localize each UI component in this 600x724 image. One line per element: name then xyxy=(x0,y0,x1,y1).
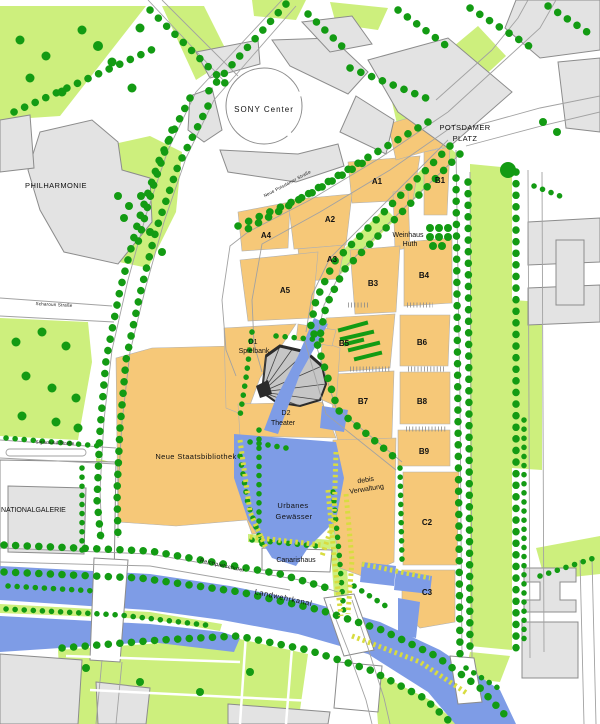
building-nationalgalerie xyxy=(8,486,86,554)
label-d1-spielbank: Spielbank xyxy=(239,348,270,355)
label-block-A2: A2 xyxy=(325,215,336,224)
label-staatsbibliothek: Neue Staatsbibliothek xyxy=(155,452,236,461)
label-sony-center: SONY Center xyxy=(234,105,294,114)
label-block-A1: A1 xyxy=(372,177,383,186)
label-d1: D1 xyxy=(249,339,258,346)
building-bottom-left-2 xyxy=(96,682,150,724)
label-d2-theater: Theater xyxy=(271,420,296,427)
label-block-B5: B5 xyxy=(339,339,350,348)
label-block-A5: A5 xyxy=(280,286,291,295)
label-block-A3: A3 xyxy=(327,255,338,264)
park-east-strip xyxy=(470,164,512,650)
label-block-C2: C2 xyxy=(422,518,433,527)
label-sigismund-strasse: Sigismund Straße xyxy=(35,439,74,445)
park-left-middle xyxy=(0,318,92,440)
label-potsdamer-platz-1: POTSDAMER xyxy=(439,123,490,132)
label-weinhaus-2: Huth xyxy=(403,241,418,248)
building-philharmonie-west xyxy=(0,115,34,172)
label-d2: D2 xyxy=(282,410,291,417)
label-weinhaus-1: Weinhaus xyxy=(392,232,424,239)
label-block-B4: B4 xyxy=(419,271,430,280)
label-philharmonie: PHILHARMONIE xyxy=(25,181,87,190)
label-urbanes-1: Urbanes xyxy=(277,501,308,510)
label-block-B3: B3 xyxy=(368,279,379,288)
label-nationalgalerie: NATIONALGALERIE xyxy=(1,507,66,514)
water-debis-south-1 xyxy=(360,562,396,586)
label-scharoun-strasse: Scharoun Straße xyxy=(35,301,73,308)
label-block-B7: B7 xyxy=(358,397,369,406)
building-bottom-left-1 xyxy=(0,654,82,724)
label-canarishaus: Canarishaus xyxy=(276,557,316,564)
park-top-left xyxy=(0,6,146,120)
label-block-B6: B6 xyxy=(417,338,428,347)
label-potsdamer-platz-2: PLATZ xyxy=(453,134,478,143)
label-block-B8: B8 xyxy=(417,397,428,406)
label-block-A4: A4 xyxy=(261,231,272,240)
label-urbanes-2: Gewässer xyxy=(276,512,313,521)
site-plan-map: SONY Center POTSDAMER PLATZ PHILHARMONIE… xyxy=(0,0,600,724)
label-block-C3: C3 xyxy=(422,588,433,597)
building-right-h3 xyxy=(556,240,584,305)
building-sony-s xyxy=(220,144,344,182)
label-block-B9: B9 xyxy=(419,447,430,456)
label-block-B1: B1 xyxy=(435,176,446,185)
map-canvas: SONY Center POTSDAMER PLATZ PHILHARMONIE… xyxy=(0,0,600,724)
water-c3-west xyxy=(398,598,420,638)
